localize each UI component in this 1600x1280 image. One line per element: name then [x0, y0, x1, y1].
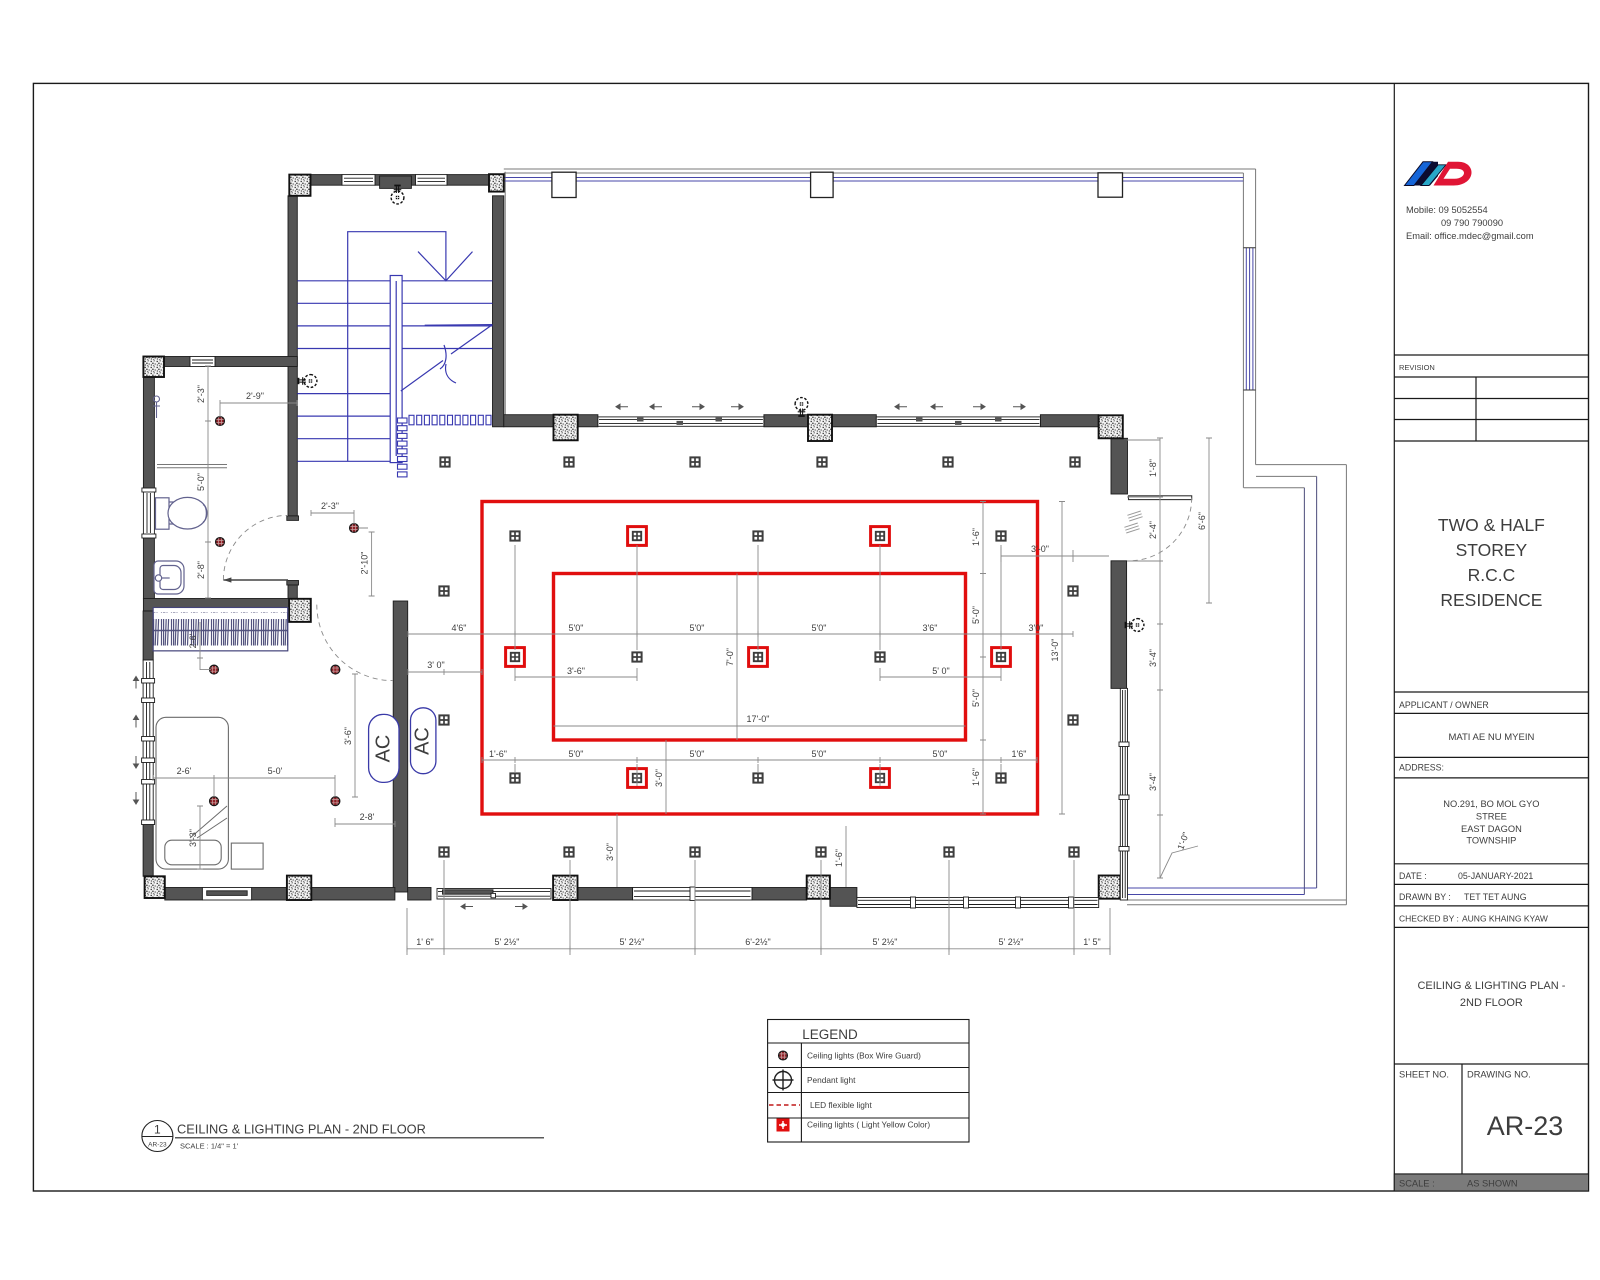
- svg-text:17'-0": 17'-0": [747, 714, 770, 724]
- svg-text:5'-0": 5'-0": [196, 473, 206, 491]
- svg-text:4'6": 4'6": [452, 623, 467, 633]
- svg-text:LED flexible light: LED flexible light: [810, 1100, 872, 1110]
- svg-text:1'-6": 1'-6": [971, 768, 981, 786]
- svg-text:2-6': 2-6': [188, 633, 198, 648]
- svg-text:CEILING & LIGHTING PLAN -: CEILING & LIGHTING PLAN -: [1417, 980, 1565, 992]
- svg-text:3'-0": 3'-0": [605, 843, 615, 861]
- svg-text:2'-3": 2'-3": [321, 501, 339, 511]
- svg-text:2ND FLOOR: 2ND FLOOR: [1460, 997, 1523, 1009]
- svg-text:2'-8": 2'-8": [196, 561, 206, 579]
- svg-text:2'-3": 2'-3": [196, 385, 206, 403]
- svg-text:5' 2½": 5' 2½": [495, 937, 520, 947]
- svg-text:5'0": 5'0": [690, 623, 705, 633]
- svg-text:TWO & HALF: TWO & HALF: [1438, 515, 1545, 535]
- svg-text:3'0": 3'0": [1029, 623, 1044, 633]
- svg-text:2-6': 2-6': [177, 766, 192, 776]
- svg-text:DRAWING NO.: DRAWING NO.: [1467, 1070, 1531, 1080]
- svg-text:3'-6": 3'-6": [343, 727, 353, 745]
- svg-text:Email: office.mdec@gmail.com: Email: office.mdec@gmail.com: [1406, 231, 1534, 241]
- svg-text:3'-0": 3'-0": [1031, 544, 1049, 554]
- svg-text:5'0": 5'0": [812, 623, 827, 633]
- svg-text:APPLICANT / OWNER: APPLICANT / OWNER: [1399, 700, 1489, 710]
- svg-text:RESIDENCE: RESIDENCE: [1440, 590, 1542, 610]
- svg-text:6'-6": 6'-6": [1197, 512, 1207, 530]
- svg-text:AC: AC: [411, 727, 433, 755]
- svg-text:DRAWN BY :: DRAWN BY :: [1399, 892, 1451, 902]
- svg-text:Ceiling lights (Box Wire Guard: Ceiling lights (Box Wire Guard): [807, 1051, 921, 1061]
- svg-text:1' 6": 1' 6": [416, 937, 433, 947]
- svg-text:1'6": 1'6": [1012, 749, 1027, 759]
- svg-text:5' 2½": 5' 2½": [999, 937, 1024, 947]
- svg-text:3'-0": 3'-0": [654, 769, 664, 787]
- svg-text:5'0": 5'0": [812, 749, 827, 759]
- svg-text:SCALE : 1/4" = 1': SCALE : 1/4" = 1': [180, 1142, 239, 1151]
- svg-text:AS SHOWN: AS SHOWN: [1467, 1179, 1518, 1189]
- svg-text:5'-0": 5'-0": [971, 606, 981, 624]
- svg-text:LEGEND: LEGEND: [802, 1027, 858, 1042]
- svg-text:TOWNSHIP: TOWNSHIP: [1466, 836, 1516, 846]
- svg-text:5' 2½": 5' 2½": [873, 937, 898, 947]
- svg-text:1'-6": 1'-6": [489, 749, 507, 759]
- svg-text:2'-4": 2'-4": [1148, 521, 1158, 539]
- svg-text:09 790 790090: 09 790 790090: [1441, 218, 1503, 228]
- svg-text:AR-23: AR-23: [148, 1142, 167, 1149]
- svg-text:TET TET AUNG: TET TET AUNG: [1464, 892, 1527, 902]
- svg-text:CEILING & LIGHTING PLAN - 2ND: CEILING & LIGHTING PLAN - 2ND FLOOR: [177, 1122, 426, 1137]
- svg-text:Pendant light: Pendant light: [807, 1075, 856, 1085]
- svg-text:NO.291, BO MOL GYO: NO.291, BO MOL GYO: [1443, 799, 1539, 809]
- svg-text:5' 0": 5' 0": [932, 666, 949, 676]
- svg-text:5'0": 5'0": [690, 749, 705, 759]
- svg-text:13'-0": 13'-0": [1050, 639, 1060, 662]
- svg-text:EAST DAGON: EAST DAGON: [1461, 824, 1522, 834]
- svg-text:3'-4": 3'-4": [1148, 773, 1158, 791]
- svg-text:1'-6": 1'-6": [971, 528, 981, 546]
- svg-text:5'0": 5'0": [569, 623, 584, 633]
- svg-text:5'-0": 5'-0": [971, 689, 981, 707]
- svg-text:3'6": 3'6": [923, 623, 938, 633]
- svg-text:2-8': 2-8': [360, 812, 375, 822]
- svg-text:5'0": 5'0": [569, 749, 584, 759]
- svg-text:1'-8": 1'-8": [1148, 459, 1158, 477]
- svg-text:CHECKED BY :: CHECKED BY :: [1399, 914, 1459, 924]
- svg-text:5' 2½": 5' 2½": [620, 937, 645, 947]
- svg-text:STOREY: STOREY: [1456, 540, 1528, 560]
- svg-text:REVISION: REVISION: [1399, 363, 1435, 372]
- svg-text:STREE: STREE: [1476, 812, 1507, 822]
- svg-text:3'-4": 3'-4": [1148, 649, 1158, 667]
- svg-text:5'0": 5'0": [933, 749, 948, 759]
- svg-text:ADDRESS:: ADDRESS:: [1399, 763, 1444, 773]
- svg-text:DATE :: DATE :: [1399, 871, 1427, 881]
- svg-text:6'-2½": 6'-2½": [745, 937, 770, 947]
- svg-text:Mobile: 09 5052554: Mobile: 09 5052554: [1406, 205, 1488, 215]
- svg-text:3'-6": 3'-6": [567, 666, 585, 676]
- svg-text:AUNG KHAING KYAW: AUNG KHAING KYAW: [1462, 914, 1548, 924]
- svg-text:1: 1: [154, 1123, 161, 1137]
- svg-text:5-0': 5-0': [268, 766, 283, 776]
- svg-text:AC: AC: [372, 735, 394, 763]
- svg-text:1'-6": 1'-6": [834, 849, 844, 867]
- svg-text:SCALE :: SCALE :: [1399, 1179, 1435, 1189]
- svg-text:2'-9": 2'-9": [246, 391, 264, 401]
- svg-text:3' 0": 3' 0": [427, 660, 444, 670]
- svg-text:Ceiling lights ( Light Yellow: Ceiling lights ( Light Yellow Color): [807, 1120, 930, 1130]
- svg-text:MATI AE NU MYEIN: MATI AE NU MYEIN: [1448, 732, 1534, 743]
- svg-text:05-JANUARY-2021: 05-JANUARY-2021: [1458, 871, 1533, 881]
- svg-text:AR-23: AR-23: [1487, 1111, 1564, 1141]
- svg-text:2'-10": 2'-10": [360, 552, 370, 575]
- svg-text:1' 5": 1' 5": [1083, 937, 1100, 947]
- svg-text:3'-3": 3'-3": [188, 829, 198, 847]
- svg-text:7'-0": 7'-0": [725, 648, 735, 666]
- svg-text:R.C.C: R.C.C: [1468, 565, 1516, 585]
- svg-text:SHEET NO.: SHEET NO.: [1399, 1070, 1449, 1080]
